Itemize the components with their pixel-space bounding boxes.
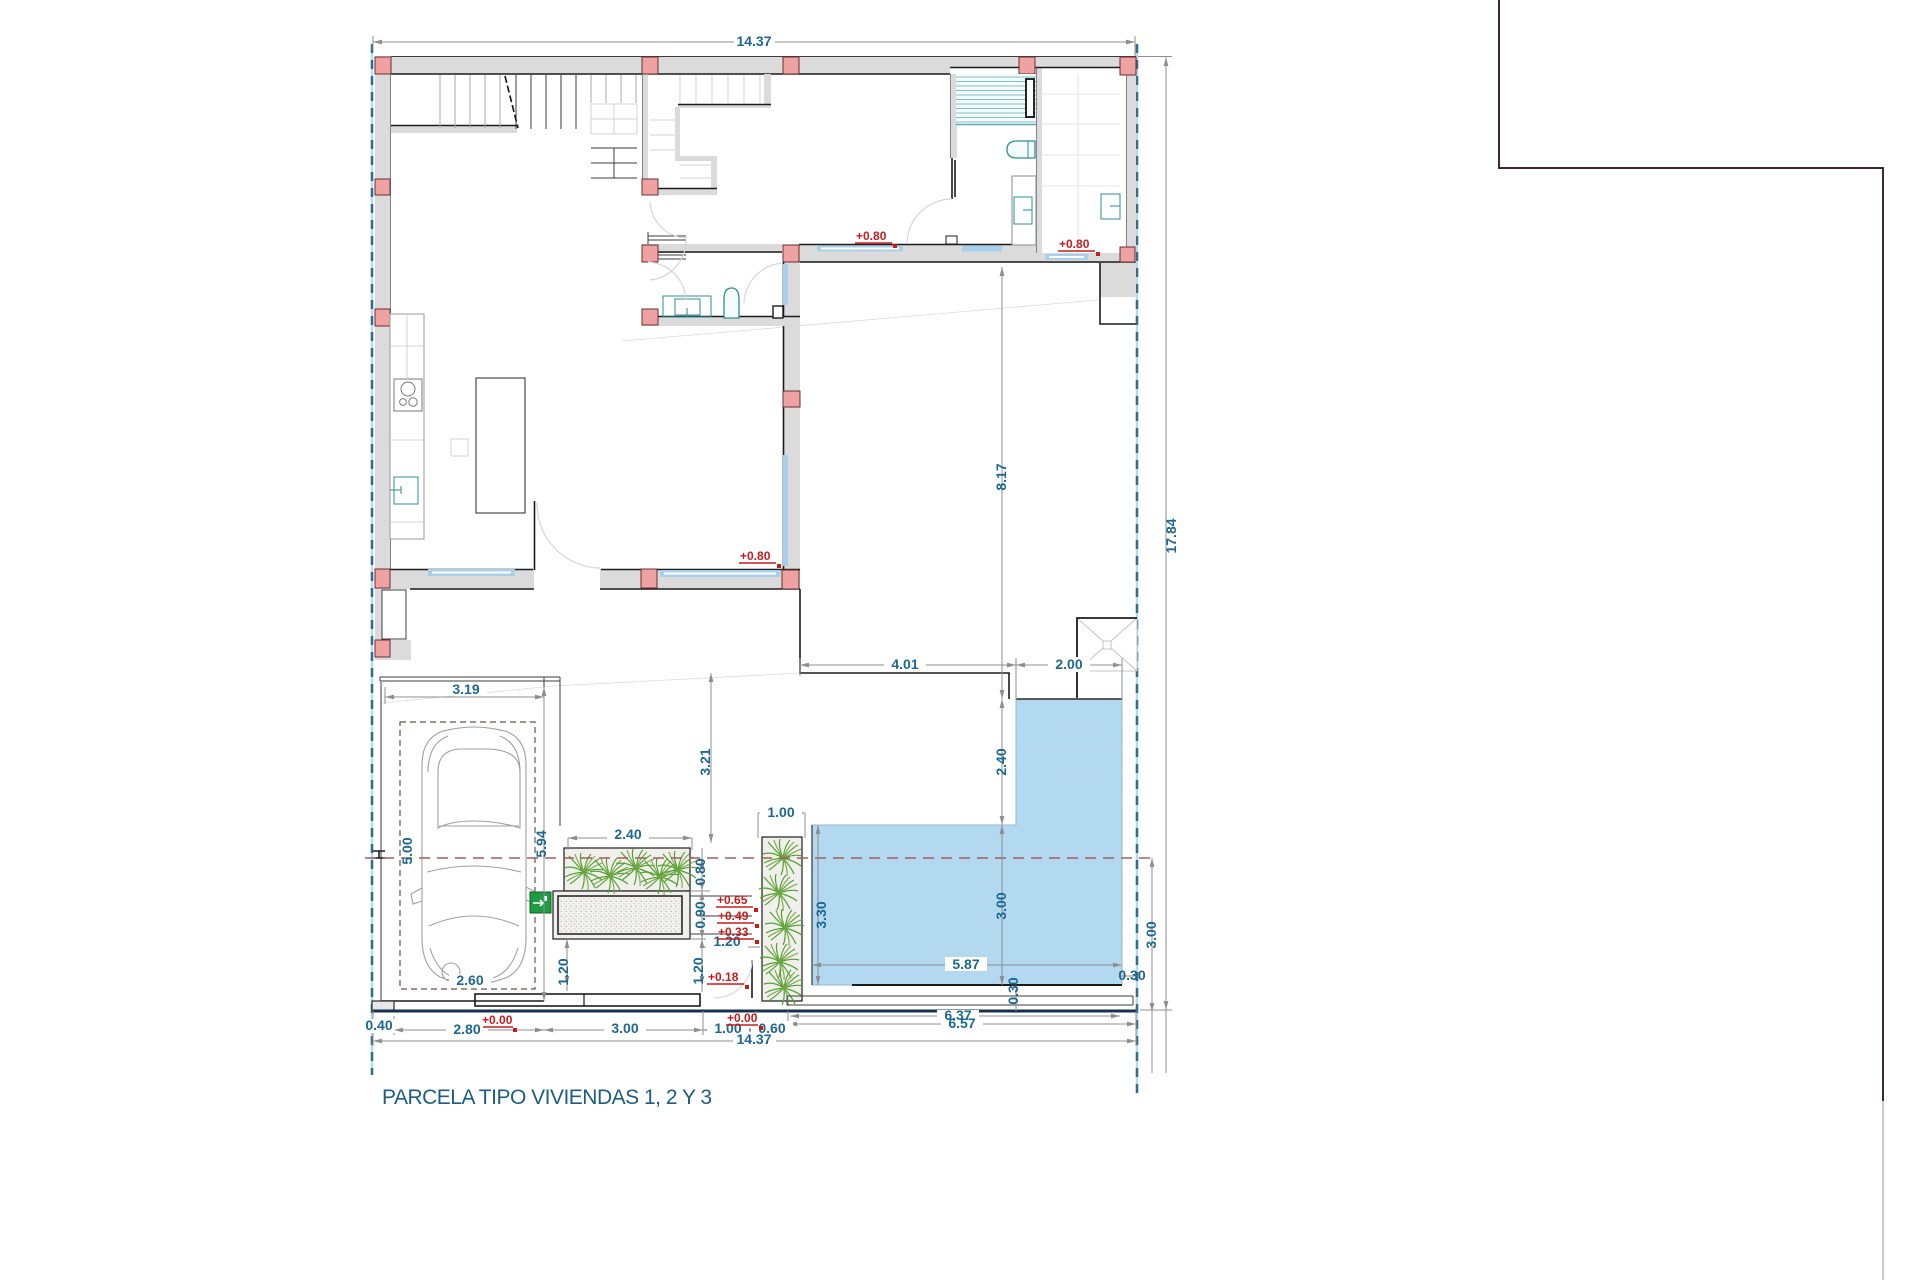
svg-text:2.40: 2.40	[993, 748, 1009, 775]
svg-text:+0.00: +0.00	[482, 1013, 513, 1027]
svg-text:0.90: 0.90	[692, 901, 708, 928]
svg-text:+0.49: +0.49	[718, 909, 749, 923]
svg-text:5.00: 5.00	[399, 837, 415, 864]
svg-text:3.19: 3.19	[452, 681, 479, 697]
svg-text:0.80: 0.80	[692, 858, 708, 885]
svg-text:0.30: 0.30	[1118, 967, 1145, 983]
svg-text:1.00: 1.00	[767, 804, 794, 820]
svg-text:5.94: 5.94	[533, 830, 549, 857]
svg-text:2.00: 2.00	[1055, 656, 1082, 672]
svg-text:+0.80: +0.80	[1059, 237, 1090, 251]
svg-text:+0.65: +0.65	[717, 893, 748, 907]
svg-text:14.37: 14.37	[736, 33, 771, 49]
svg-text:0.30: 0.30	[1005, 977, 1021, 1004]
svg-text:0.40: 0.40	[365, 1017, 392, 1033]
svg-text:3.00: 3.00	[993, 892, 1009, 919]
svg-text:+0.80: +0.80	[856, 229, 887, 243]
svg-text:8.17: 8.17	[993, 463, 1009, 490]
svg-text:2.80: 2.80	[453, 1021, 480, 1037]
svg-text:17.84: 17.84	[1163, 518, 1179, 553]
svg-text:+0.18: +0.18	[708, 970, 739, 984]
svg-text:6.37: 6.37	[944, 1007, 971, 1023]
svg-text:4.01: 4.01	[891, 656, 918, 672]
svg-text:2.60: 2.60	[456, 972, 483, 988]
svg-text:14.37: 14.37	[736, 1031, 771, 1047]
svg-text:5.87: 5.87	[952, 956, 979, 972]
svg-text:3.30: 3.30	[813, 901, 829, 928]
svg-text:3.21: 3.21	[697, 748, 713, 775]
svg-text:+0.33: +0.33	[718, 925, 749, 939]
svg-text:3.00: 3.00	[611, 1020, 638, 1036]
svg-text:+0.00: +0.00	[727, 1011, 758, 1025]
svg-text:1.20: 1.20	[555, 958, 571, 985]
svg-text:+0.80: +0.80	[740, 549, 771, 563]
svg-text:PARCELA TIPO VIVIENDAS 1, 2 Y: PARCELA TIPO VIVIENDAS 1, 2 Y 3	[382, 1086, 712, 1109]
svg-text:3.00: 3.00	[1143, 921, 1159, 948]
svg-text:2.40: 2.40	[614, 826, 641, 842]
svg-text:1.20: 1.20	[690, 957, 706, 984]
